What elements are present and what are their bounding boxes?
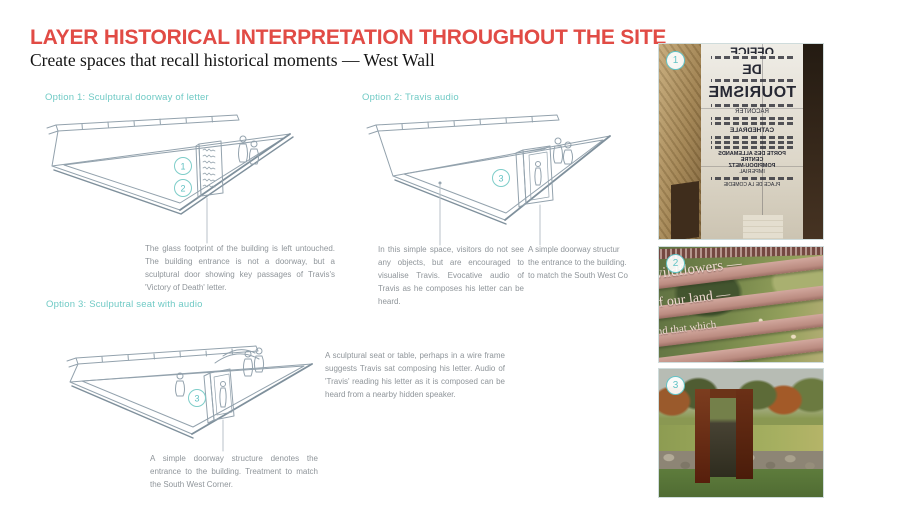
option-1-caption: The glass footprint of the building is l… (145, 242, 335, 294)
glass-word: TOURISME (701, 84, 803, 102)
glass-word: PLACE DE LA COMEDIE (701, 182, 803, 188)
caption-line: the entrance to the building. (528, 256, 650, 269)
sketch-option-2: 3 (360, 108, 645, 246)
photo-1-glass-door: 1 OFFICE DE TOURISME RACONTER CATHEDRALE… (658, 43, 824, 240)
caption-line: to match the South West Co (528, 269, 650, 282)
glass-word: OFFICE (701, 45, 803, 54)
page-title: LAYER HISTORICAL INTERPRETATION THROUGHO… (30, 26, 666, 50)
band-word: of our land — (658, 287, 731, 313)
option-2-caption: In this simple space, visitors do not se… (378, 243, 524, 308)
sketch1-marker-2: 2 (180, 184, 185, 194)
glass-word: RACONTER (701, 109, 803, 115)
photo-2-number-badge: 2 (666, 254, 685, 273)
option-2-caption-right: A simple doorway structur the entrance t… (528, 243, 650, 282)
photo-1-number-badge: 1 (666, 51, 685, 70)
photo-1-mirrored-text: OFFICE DE TOURISME RACONTER CATHEDRALE P… (701, 44, 803, 188)
page-subtitle: Create spaces that recall historical mom… (30, 50, 435, 71)
photo-1-pavement (743, 215, 783, 239)
caption-line: A simple doorway structur (528, 243, 650, 256)
doorway-opening (710, 398, 736, 477)
doorway-right-post (736, 389, 753, 479)
band-word: and that which (658, 319, 717, 339)
sketch1-marker-1: 1 (180, 162, 185, 172)
photo-2-slat: of our land — (658, 280, 824, 320)
photo-3-doorway-sculpture (695, 389, 753, 483)
sketch-option-3: 3 (60, 316, 345, 452)
glass-word: IMPERIAL (701, 169, 803, 175)
option-3-caption: A simple doorway structure denotes the e… (150, 452, 318, 491)
sketch-option-1: 1 2 (40, 108, 325, 244)
photo-2-text-bands: wildflowers — of our land — and that whi… (658, 246, 824, 363)
glass-word: DE (701, 61, 803, 77)
photo-1-door-frame (803, 44, 823, 239)
sketch3-marker-3: 3 (194, 394, 199, 404)
photo-3-corten-doorway: 3 (658, 368, 824, 498)
doorway-left-post (695, 389, 710, 483)
photo-3-number-badge: 3 (666, 376, 685, 395)
photo-1-glass-pane: OFFICE DE TOURISME RACONTER CATHEDRALE P… (701, 44, 803, 239)
option-1-label: Option 1: Sculptural doorway of letter (45, 92, 209, 103)
slide: LAYER HISTORICAL INTERPRETATION THROUGHO… (0, 0, 920, 518)
photo-1-open-door (671, 181, 699, 240)
sketch2-marker-3: 3 (498, 174, 503, 184)
option-3-caption-right: A sculptural seat or table, perhaps in a… (325, 349, 505, 401)
option-3-label: Option 3: Sculputral seat with audio (46, 299, 203, 310)
glass-word: CATHEDRALE (701, 127, 803, 134)
option-2-label: Option 2: Travis audio (362, 92, 459, 103)
